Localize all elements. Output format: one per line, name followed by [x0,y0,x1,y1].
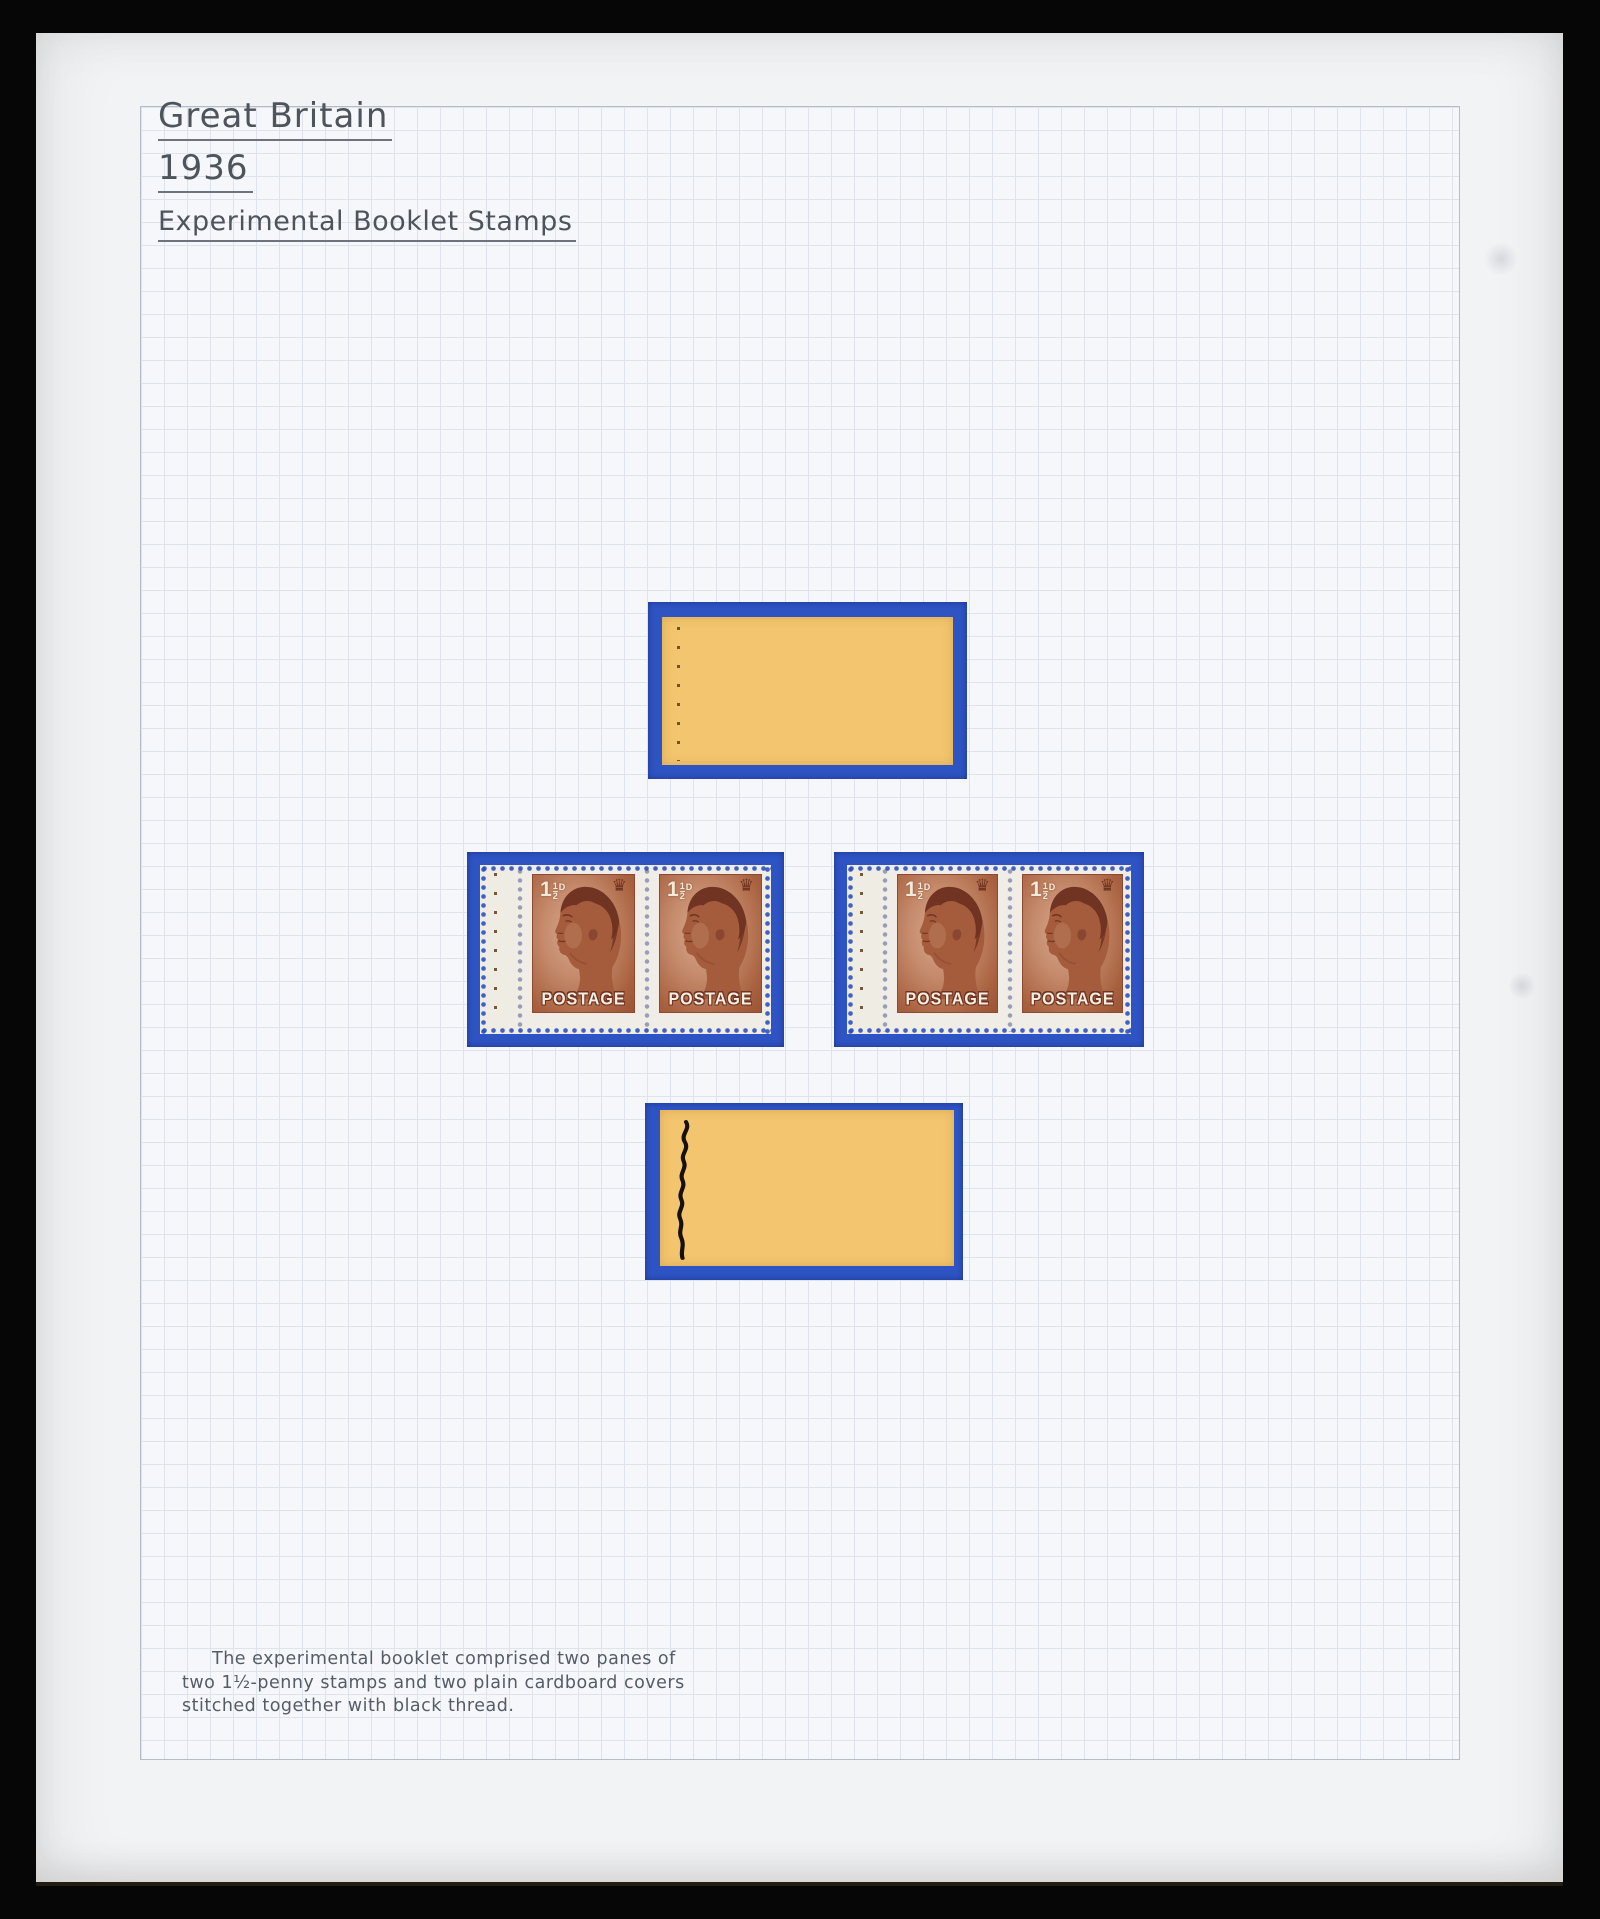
crown-icon: ♛ [739,878,754,895]
postage-label: POSTAGE [1023,990,1122,1009]
stamp-value: 1 12 D [667,881,692,901]
perforation-edge [479,865,488,1034]
crown-icon: ♛ [1100,878,1115,895]
booklet-cover-bottom [660,1110,954,1266]
booklet-cover-bottom-mount [645,1103,963,1280]
stamp-value: 1 12 D [905,881,930,901]
crown-icon: ♛ [975,878,990,895]
caption: The experimental booklet comprised two p… [182,1648,742,1719]
stamp-value: 1 12 D [1030,881,1055,901]
caption-line: The experimental booklet comprised two p… [182,1648,742,1672]
stamp: 1 12 D ♛ POSTAGE [651,865,770,1034]
caption-line: stitched together with black thread. [182,1695,742,1719]
postage-label: POSTAGE [533,990,634,1009]
stamp-design: 1 12 D ♛ POSTAGE [659,874,762,1013]
perforation-column [881,867,889,1032]
perforation-column [1006,867,1014,1032]
heading-country: Great Britain [158,96,392,141]
postage-label: POSTAGE [660,990,761,1009]
paper-smudge [1484,242,1518,276]
paper-smudge [1508,972,1536,1000]
photographed-album-page: Great Britain 1936 Experimental Booklet … [0,0,1600,1919]
heading-subtitle: Experimental Booklet Stamps [158,206,576,242]
perforation-edge [847,1026,1131,1035]
stitch-holes [677,627,680,761]
black-thread [672,1118,700,1262]
perforation-edge [847,864,1131,873]
perforation-column [643,867,651,1032]
postage-label: POSTAGE [898,990,997,1009]
stamp-design: 1 12 D ♛ POSTAGE [1022,874,1123,1013]
stamp: 1 12 D ♛ POSTAGE [524,865,643,1034]
stitch-holes [494,873,497,1025]
stitch-holes [860,873,863,1025]
heading-year: 1936 [158,148,253,193]
stamp-design: 1 12 D ♛ POSTAGE [532,874,635,1013]
caption-line: two 1½-penny stamps and two plain cardbo… [182,1672,742,1696]
perforation-edge [480,864,771,873]
stamp: 1 12 D ♛ POSTAGE [1014,865,1131,1034]
stamp: 1 12 D ♛ POSTAGE [889,865,1006,1034]
stamp-pair-left-mount: 1 12 D ♛ POSTAGE [467,852,784,1047]
booklet-cover-top-mount [648,602,967,779]
perforation-edge [480,1026,771,1035]
perforation-column [516,867,524,1032]
booklet-cover-top [662,617,953,765]
stamp-pair-right-mount: 1 12 D ♛ POSTAGE [834,852,1144,1047]
perforation-edge [763,865,772,1034]
perforation-edge [1123,865,1132,1034]
perforation-edge [846,865,855,1034]
stamp-pane: 1 12 D ♛ POSTAGE [480,865,771,1034]
crown-icon: ♛ [612,878,627,895]
graph-paper-grid [140,106,1460,1760]
stamp-pane: 1 12 D ♛ POSTAGE [847,865,1131,1034]
stamp-value: 1 12 D [540,881,565,901]
stamp-design: 1 12 D ♛ POSTAGE [897,874,998,1013]
